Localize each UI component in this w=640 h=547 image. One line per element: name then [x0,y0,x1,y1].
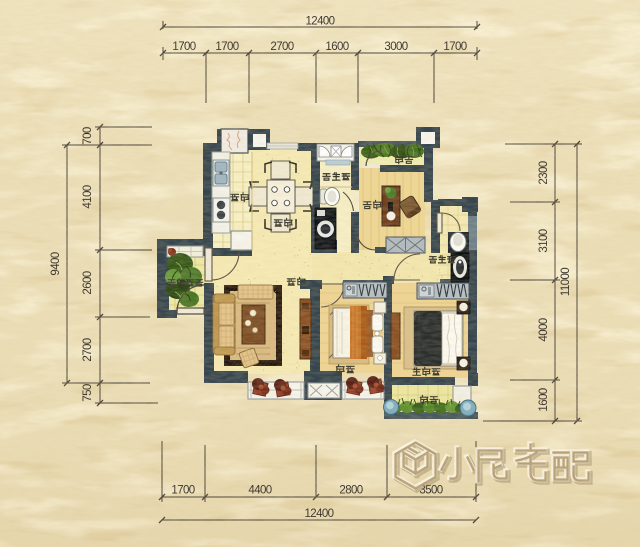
svg-text:1700: 1700 [171,485,194,497]
svg-text:4000: 4000 [538,318,550,341]
svg-text:12400: 12400 [306,16,335,28]
svg-text:9400: 9400 [50,252,62,275]
svg-text:2700: 2700 [82,338,94,361]
svg-text:1700: 1700 [443,41,466,53]
svg-text:1700: 1700 [215,41,238,53]
svg-text:1600: 1600 [325,41,348,53]
svg-text:1600: 1600 [538,388,550,411]
svg-text:12400: 12400 [305,508,334,520]
svg-text:3100: 3100 [538,229,550,252]
svg-text:3000: 3000 [384,41,407,53]
svg-text:2800: 2800 [339,485,362,497]
svg-text:1700: 1700 [172,41,195,53]
svg-text:750: 750 [82,384,94,402]
svg-text:700: 700 [82,127,94,145]
svg-text:4100: 4100 [82,185,94,208]
svg-text:2600: 2600 [82,271,94,294]
svg-text:11000: 11000 [560,268,572,296]
svg-text:2700: 2700 [270,41,293,53]
svg-text:2300: 2300 [538,161,550,184]
svg-text:4400: 4400 [248,485,271,497]
